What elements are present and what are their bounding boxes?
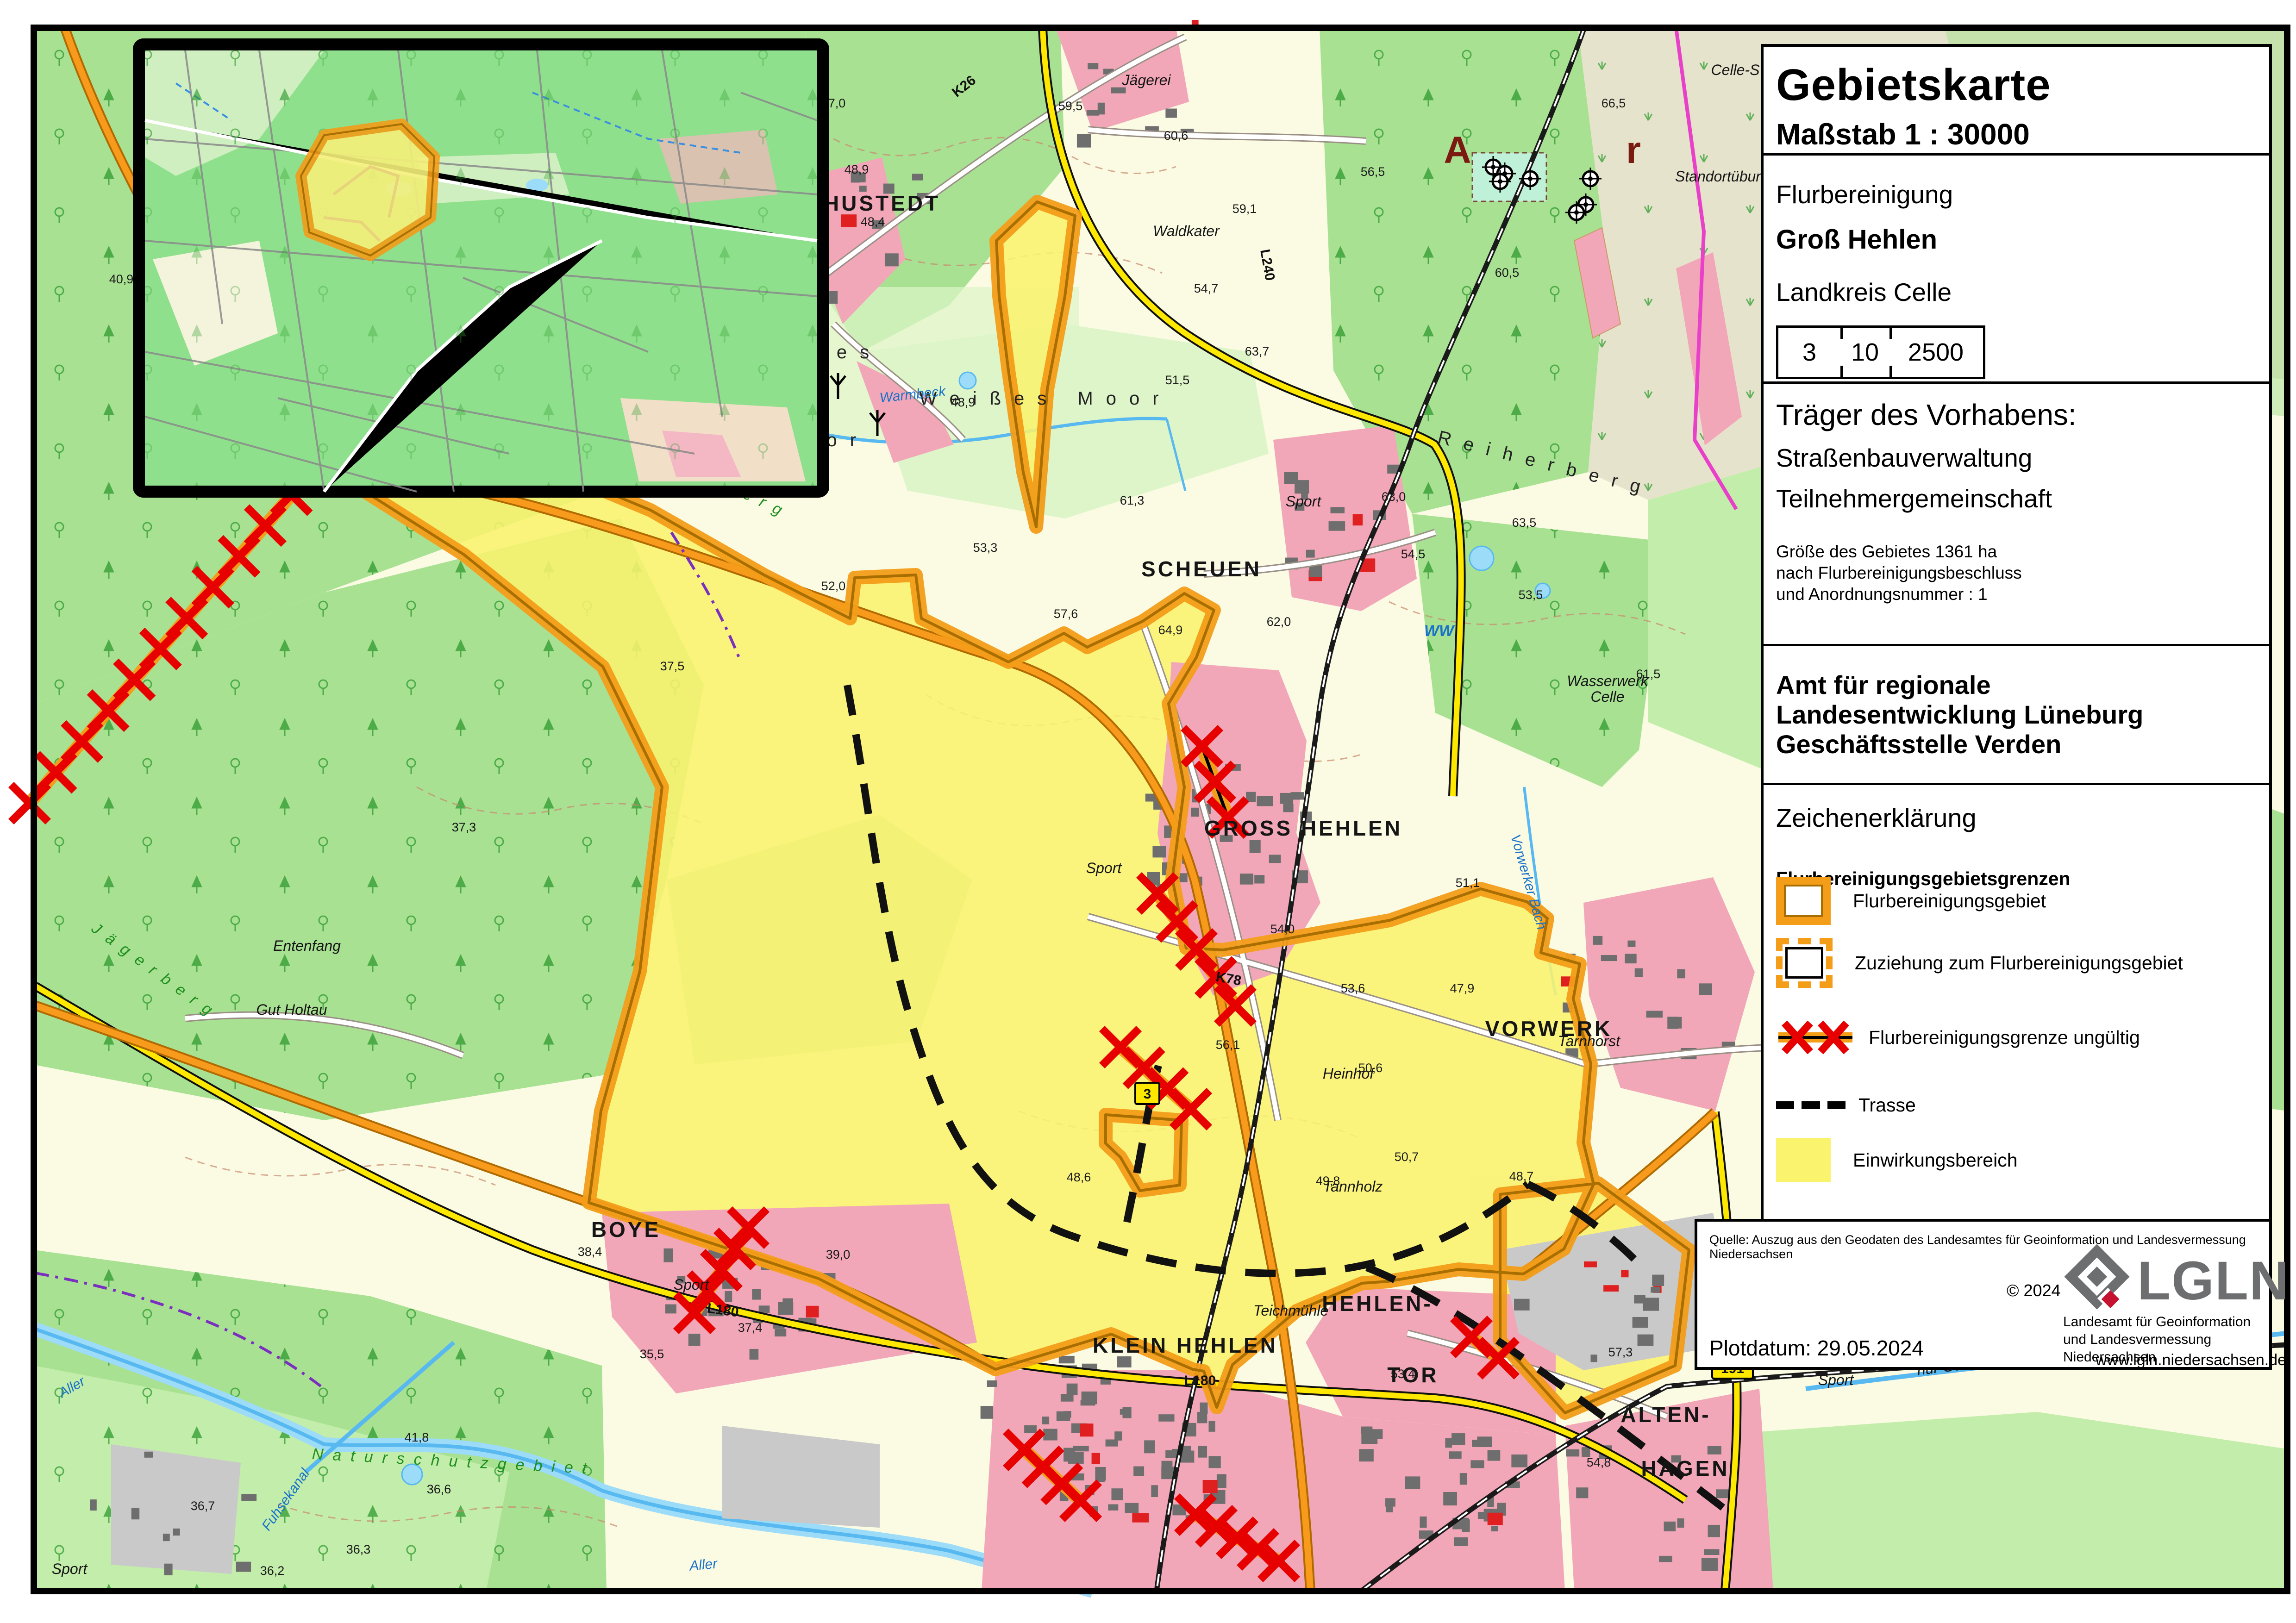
legend-item: Trasse — [1776, 1094, 1916, 1116]
map-label: Jägerei — [1122, 72, 1171, 88]
lgln-logo — [2062, 1242, 2132, 1311]
legend-label: Flurbereinigungsgrenze ungültig — [1869, 1027, 2140, 1049]
office-line1: Amt für regionale — [1776, 670, 2269, 700]
elevation-label: 39,0 — [826, 1248, 851, 1261]
elevation-label: 52,0 — [821, 579, 846, 593]
elevation-label: 59,5 — [1058, 99, 1083, 113]
inset-overview-map — [139, 44, 823, 492]
map-label: Aller — [688, 1556, 719, 1573]
elevation-label: 48,7 — [1509, 1169, 1534, 1183]
map-label: Celle — [1591, 688, 1625, 705]
office-line2: Landesentwicklung Lüneburg — [1776, 700, 2269, 730]
elevation-label: 63,7 — [1245, 344, 1270, 358]
sponsor-line1: Straßenbauverwaltung — [1776, 443, 2269, 473]
legend-heading: Zeichenerklärung — [1776, 785, 2269, 833]
elevation-label: 63,5 — [1512, 516, 1537, 530]
map-label: SCHEUEN — [1141, 557, 1262, 581]
office-section: Amt für regionale Landesentwicklung Lüne… — [1764, 646, 2269, 785]
legend-label: Trasse — [1858, 1094, 1916, 1116]
map-label: r — [1626, 129, 1641, 171]
map-label: HAGEN — [1641, 1456, 1729, 1480]
elevation-label: 59,1 — [1232, 202, 1257, 216]
area-line1: Größe des Gebietes 1361 ha — [1776, 541, 2269, 562]
elevation-label: 54,8 — [1587, 1455, 1611, 1469]
lgln-wordmark: LGLN — [2137, 1249, 2290, 1312]
map-scale: Maßstab 1 : 30000 — [1776, 117, 2269, 151]
map-label: Teichmühle — [1253, 1302, 1328, 1319]
elevation-label: 49,8 — [1316, 1174, 1340, 1188]
map-label: Waldkater — [1153, 223, 1220, 239]
map-label: Standortübun — [1675, 168, 1764, 185]
elevation-label: 54,7 — [1194, 281, 1219, 295]
plot-date: Plotdatum: 29.05.2024 — [1709, 1336, 1924, 1361]
elevation-label: 50,7 — [1395, 1150, 1419, 1164]
map-label: Sport — [1286, 493, 1322, 510]
map-title: Gebietskarte — [1776, 47, 2269, 111]
lgln-url: www.lgln.niedersachsen.de — [2096, 1351, 2286, 1369]
legend-label: Zuziehung zum Flurbereinigungsgebiet — [1855, 952, 2183, 974]
legend-swatch-einwirkungsbereich — [1776, 1138, 1831, 1182]
elevation-label: 37,4 — [738, 1321, 763, 1335]
elevation-label: 36,2 — [260, 1564, 285, 1578]
info-panel: Gebietskarte Maßstab 1 : 30000 Flurberei… — [1761, 44, 2272, 1369]
map-label: Tarnhorst — [1558, 1033, 1620, 1049]
legend-item: Flurbereinigungsgebiet — [1776, 877, 2046, 925]
procedure-name: Groß Hehlen — [1776, 224, 2269, 255]
footer-section: Quelle: Auszug aus den Geodaten des Land… — [1695, 1219, 2272, 1370]
elevation-label: 64,9 — [1158, 623, 1183, 637]
org-line1: Landesamt für Geoinformation — [2063, 1313, 2269, 1331]
elevation-label: 50,6 — [1358, 1061, 1383, 1075]
elevation-label: 54,5 — [1401, 547, 1426, 561]
map-label: HUSTEDT — [824, 191, 940, 215]
map-label: Sport — [674, 1276, 710, 1293]
elevation-label: 62,0 — [1267, 615, 1291, 629]
area-line3: und Anordnungsnummer : 1 — [1776, 584, 2269, 605]
map-label: Sport — [52, 1561, 88, 1577]
map-label: Sport — [1086, 860, 1122, 876]
sheet-number-1: 3 — [1778, 338, 1840, 367]
map-label: KLEIN HEHLEN — [1093, 1333, 1278, 1357]
sponsor-section: Träger des Vorhabens: Straßenbauverwaltu… — [1764, 384, 2269, 646]
elevation-label: 36,7 — [191, 1499, 215, 1513]
map-label: A — [1444, 129, 1471, 171]
sheet-number-3: 2500 — [1889, 338, 1982, 367]
office-line3: Geschäftsstelle Verden — [1776, 730, 2269, 759]
elevation-label: 63,0 — [1382, 490, 1406, 504]
elevation-label: 56,5 — [1361, 165, 1385, 179]
map-label: Gut Holtau — [257, 1001, 327, 1018]
map-label: HEHLEN- — [1322, 1292, 1433, 1316]
legend-section: Zeichenerklärung Flurbereinigungsgebiets… — [1764, 785, 2269, 1221]
map-label: WW — [1424, 622, 1455, 640]
elevation-label: 48,9 — [951, 395, 976, 409]
legend-swatch-flurbereinigungsgebiet — [1776, 877, 1831, 925]
elevation-label: 61,3 — [1120, 493, 1145, 507]
map-label: GROSS HEHLEN — [1204, 816, 1402, 840]
elevation-label: 60,5 — [1495, 266, 1520, 280]
map-label: Sport — [1818, 1372, 1854, 1388]
area-info: Größe des Gebietes 1361 ha nach Flurbere… — [1776, 541, 2269, 605]
map-label: ALTEN- — [1620, 1403, 1711, 1427]
area-line2: nach Flurbereinigungsbeschluss — [1776, 562, 2269, 584]
sponsor-line2: Teilnehmergemeinschaft — [1776, 484, 2269, 513]
map-label: Entenfang — [273, 937, 341, 954]
elevation-label: 36,6 — [427, 1482, 451, 1496]
elevation-label: 66,5 — [1602, 96, 1626, 110]
legend-item: Zuziehung zum Flurbereinigungsgebiet — [1776, 938, 2183, 988]
elevation-label: 48,6 — [1067, 1170, 1091, 1184]
copyright: © 2024 — [2007, 1281, 2061, 1300]
elevation-label: 61,5 — [1636, 667, 1661, 681]
elevation-label: 60,6 — [1164, 129, 1189, 143]
elevation-label: 56,1 — [1216, 1038, 1240, 1052]
elevation-label: 41,8 — [405, 1430, 429, 1444]
elevation-label: 53,6 — [1341, 981, 1365, 995]
map-sheet: HUSTEDTSCHEUENGROSS HEHLENVORWERKBOYEKLE… — [0, 0, 2296, 1623]
elevation-label: 53,4 — [1391, 1367, 1415, 1381]
elevation-label: 37,3 — [452, 820, 476, 834]
legend-label: Flurbereinigungsgebiet — [1853, 890, 2046, 912]
legend-swatch-ungueltig — [1776, 1017, 1855, 1058]
elevation-label: 47,9 — [1450, 981, 1475, 995]
elevation-label: 36,3 — [346, 1542, 371, 1556]
elevation-label: 37,5 — [660, 659, 685, 673]
title-section: Gebietskarte Maßstab 1 : 30000 — [1764, 47, 2269, 156]
sponsor-heading: Träger des Vorhabens: — [1776, 384, 2269, 432]
elevation-label: 35,5 — [640, 1347, 664, 1361]
sheet-number-box: 3 10 2500 — [1776, 325, 1985, 379]
sheet-number-2: 10 — [1840, 338, 1889, 367]
elevation-label: 57,6 — [1054, 607, 1078, 621]
legend-item: Flurbereinigungsgrenze ungültig — [1776, 1017, 2140, 1058]
legend-label: Einwirkungsbereich — [1853, 1149, 2018, 1171]
elevation-label: 54,0 — [1270, 922, 1295, 936]
elevation-label: 38,4 — [578, 1245, 602, 1259]
procedure-type: Flurbereinigung — [1776, 156, 2269, 209]
elevation-label: 51,5 — [1165, 373, 1190, 387]
road-shield-label: 3 — [1144, 1086, 1151, 1102]
legend-swatch-zuziehung — [1776, 938, 1833, 988]
legend-swatch-trasse — [1776, 1101, 1846, 1109]
procedure-section: Flurbereinigung Groß Hehlen Landkreis Ce… — [1764, 156, 2269, 384]
elevation-label: 48,4 — [861, 215, 885, 229]
district: Landkreis Celle — [1776, 277, 2269, 307]
elevation-label: 57,3 — [1608, 1345, 1633, 1359]
elevation-label: 51,1 — [1456, 876, 1480, 890]
elevation-label: 40,9 — [109, 272, 134, 286]
elevation-label: 53,5 — [1519, 588, 1543, 602]
map-label: Celle-S — [1711, 62, 1760, 78]
elevation-label: 48,9 — [845, 162, 869, 176]
elevation-label: 53,3 — [973, 541, 998, 555]
legend-item: Einwirkungsbereich — [1776, 1138, 2018, 1182]
map-label: BOYE — [591, 1217, 661, 1242]
map-label: L180 — [1184, 1373, 1216, 1388]
